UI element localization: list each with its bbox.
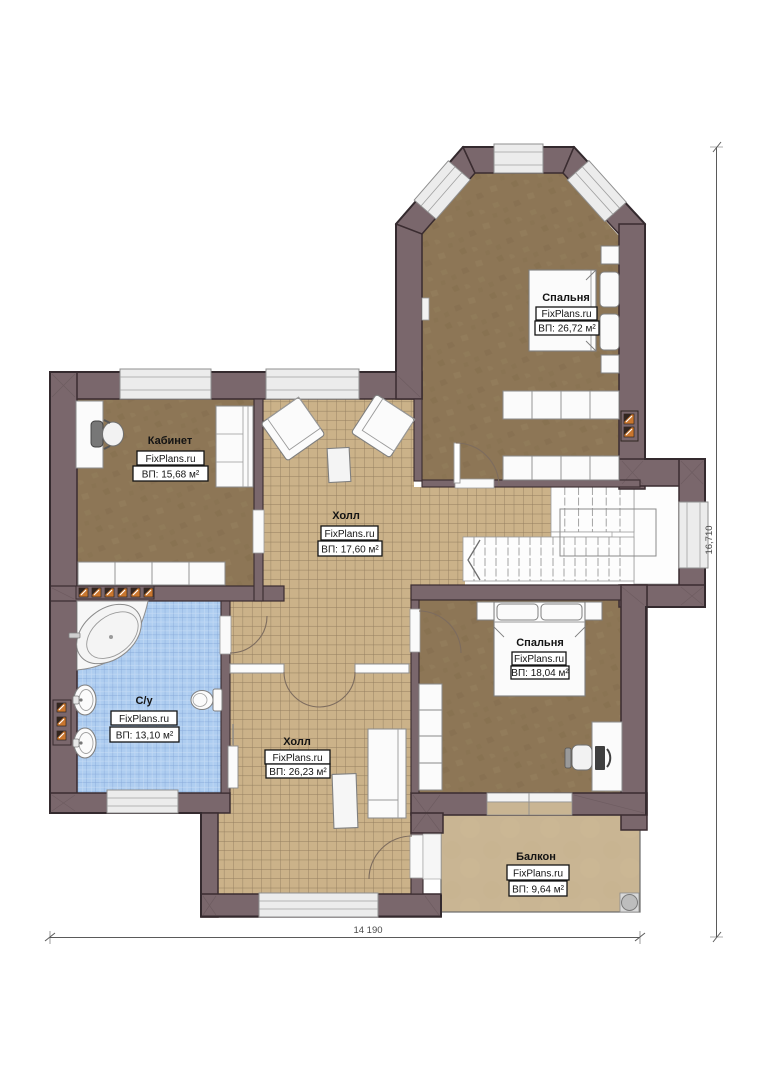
svg-text:ВП: 17,60 м²: ВП: 17,60 м² xyxy=(321,545,379,556)
svg-text:FixPlans.ru: FixPlans.ru xyxy=(272,753,322,764)
svg-text:С/у: С/у xyxy=(135,695,153,707)
svg-text:FixPlans.ru: FixPlans.ru xyxy=(541,309,591,320)
svg-text:ВП: 15,68 м²: ВП: 15,68 м² xyxy=(142,470,200,481)
svg-text:ВП: 9,64 м²: ВП: 9,64 м² xyxy=(512,885,565,896)
svg-text:Балкон: Балкон xyxy=(516,851,556,863)
svg-text:FixPlans.ru: FixPlans.ru xyxy=(514,654,564,665)
svg-text:ВП: 13,10 м²: ВП: 13,10 м² xyxy=(116,731,174,742)
svg-text:ВП: 26,23 м²: ВП: 26,23 м² xyxy=(269,767,327,778)
svg-text:Холл: Холл xyxy=(332,510,360,522)
svg-text:ВП: 26,72 м²: ВП: 26,72 м² xyxy=(538,324,596,335)
svg-text:ВП: 18,04 м²: ВП: 18,04 м² xyxy=(511,668,569,679)
svg-text:Холл: Холл xyxy=(283,736,311,748)
svg-text:16,710: 16,710 xyxy=(704,525,715,554)
svg-text:FixPlans.ru: FixPlans.ru xyxy=(119,714,169,725)
svg-text:FixPlans.ru: FixPlans.ru xyxy=(513,869,563,880)
svg-text:14 190: 14 190 xyxy=(353,925,382,936)
svg-text:Кабинет: Кабинет xyxy=(148,435,193,447)
svg-text:FixPlans.ru: FixPlans.ru xyxy=(145,454,195,465)
svg-text:Спальня: Спальня xyxy=(516,637,564,649)
svg-text:Спальня: Спальня xyxy=(542,292,590,304)
svg-text:FixPlans.ru: FixPlans.ru xyxy=(324,529,374,540)
